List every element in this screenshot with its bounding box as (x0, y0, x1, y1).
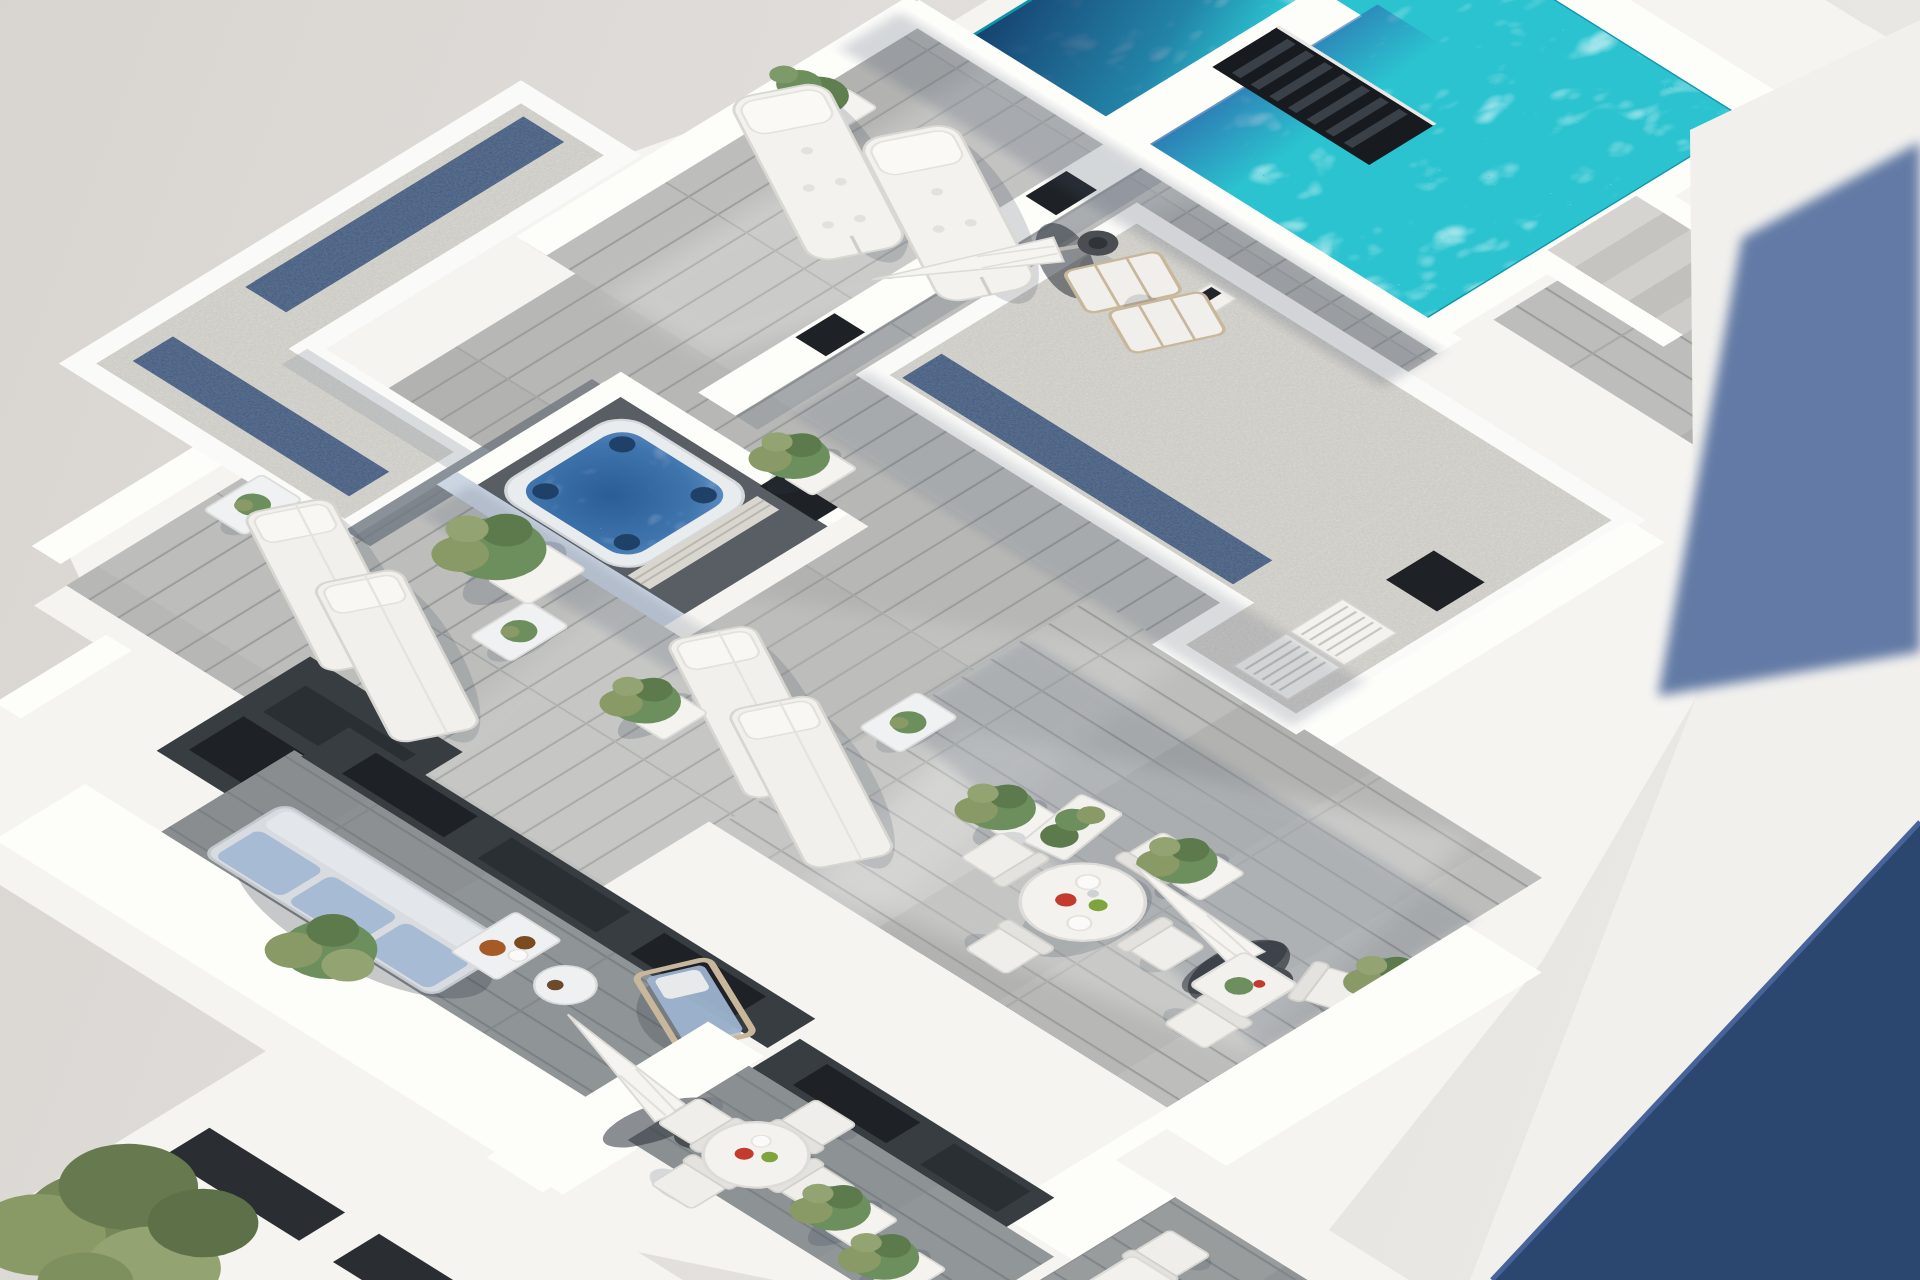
render-canvas (0, 0, 1920, 1280)
rooftop-render (0, 0, 1920, 1280)
